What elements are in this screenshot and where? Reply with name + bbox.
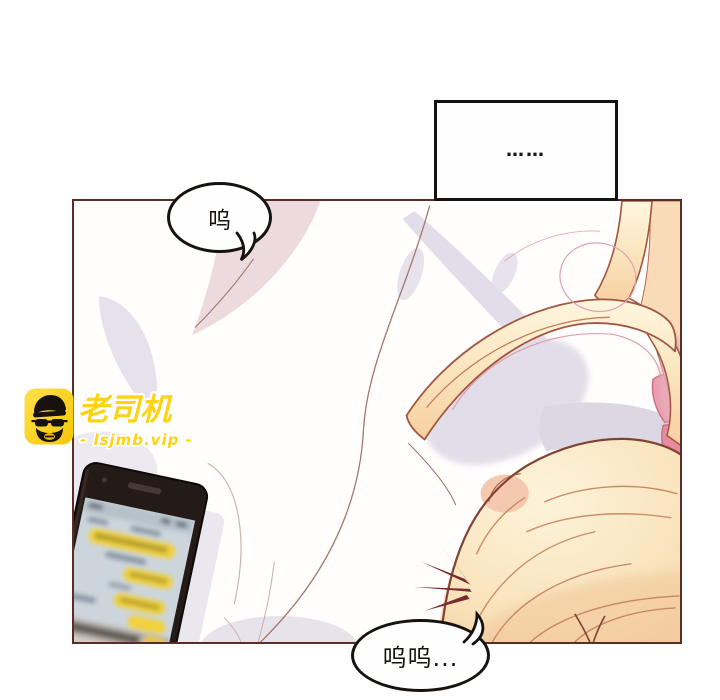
- speech-bubble-top-text: 呜: [208, 201, 231, 235]
- watermark-site-text: - lsjmb.vip -: [80, 431, 193, 449]
- speech-bubble-bottom-tail: [459, 609, 495, 647]
- comic-page: …… 呜 呜呜...: [0, 0, 720, 700]
- driver-face-icon: [24, 388, 74, 445]
- caption-box: ……: [434, 100, 618, 201]
- phone: [74, 461, 231, 642]
- caption-text: ……: [506, 140, 546, 161]
- ear: [481, 475, 529, 513]
- speech-bubble-bottom-text: 呜呜...: [383, 638, 459, 673]
- speech-bubble-top-tail: [233, 231, 263, 263]
- watermark-brand-text: 老司机: [78, 392, 173, 428]
- watermark-text: 老司机 - lsjmb.vip -: [76, 388, 201, 458]
- watermark: 老司机 - lsjmb.vip -: [24, 388, 201, 458]
